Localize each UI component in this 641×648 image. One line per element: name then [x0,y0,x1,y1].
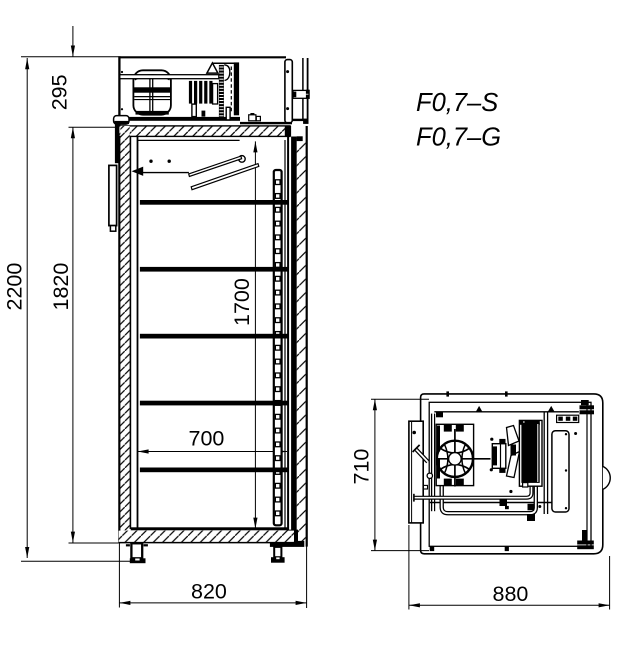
svg-text:880: 880 [493,582,529,606]
svg-text:820: 820 [191,580,227,604]
svg-text:2200: 2200 [3,263,27,311]
svg-text:F0,7–G: F0,7–G [416,123,501,151]
svg-text:F0,7–S: F0,7–S [416,89,498,117]
svg-text:1820: 1820 [49,263,73,311]
svg-text:710: 710 [350,449,374,485]
svg-text:700: 700 [189,427,225,451]
svg-text:295: 295 [48,74,72,110]
svg-text:1700: 1700 [230,278,254,326]
